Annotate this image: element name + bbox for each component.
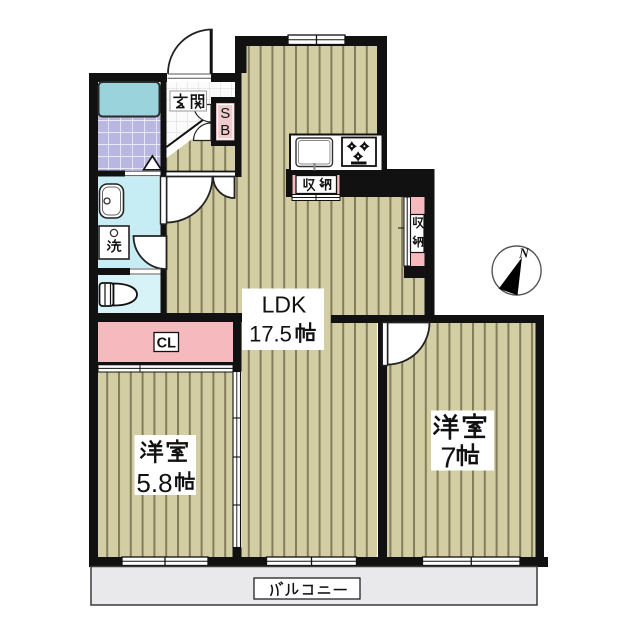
svg-text:17.5: 17.5 (249, 322, 292, 347)
svg-text:LDK: LDK (262, 292, 307, 318)
svg-text:S: S (220, 105, 230, 122)
svg-text:CL: CL (157, 336, 176, 352)
svg-text:N: N (518, 246, 530, 261)
svg-text:5.8: 5.8 (136, 468, 172, 498)
svg-text:7: 7 (440, 443, 456, 475)
svg-text:B: B (220, 122, 230, 139)
